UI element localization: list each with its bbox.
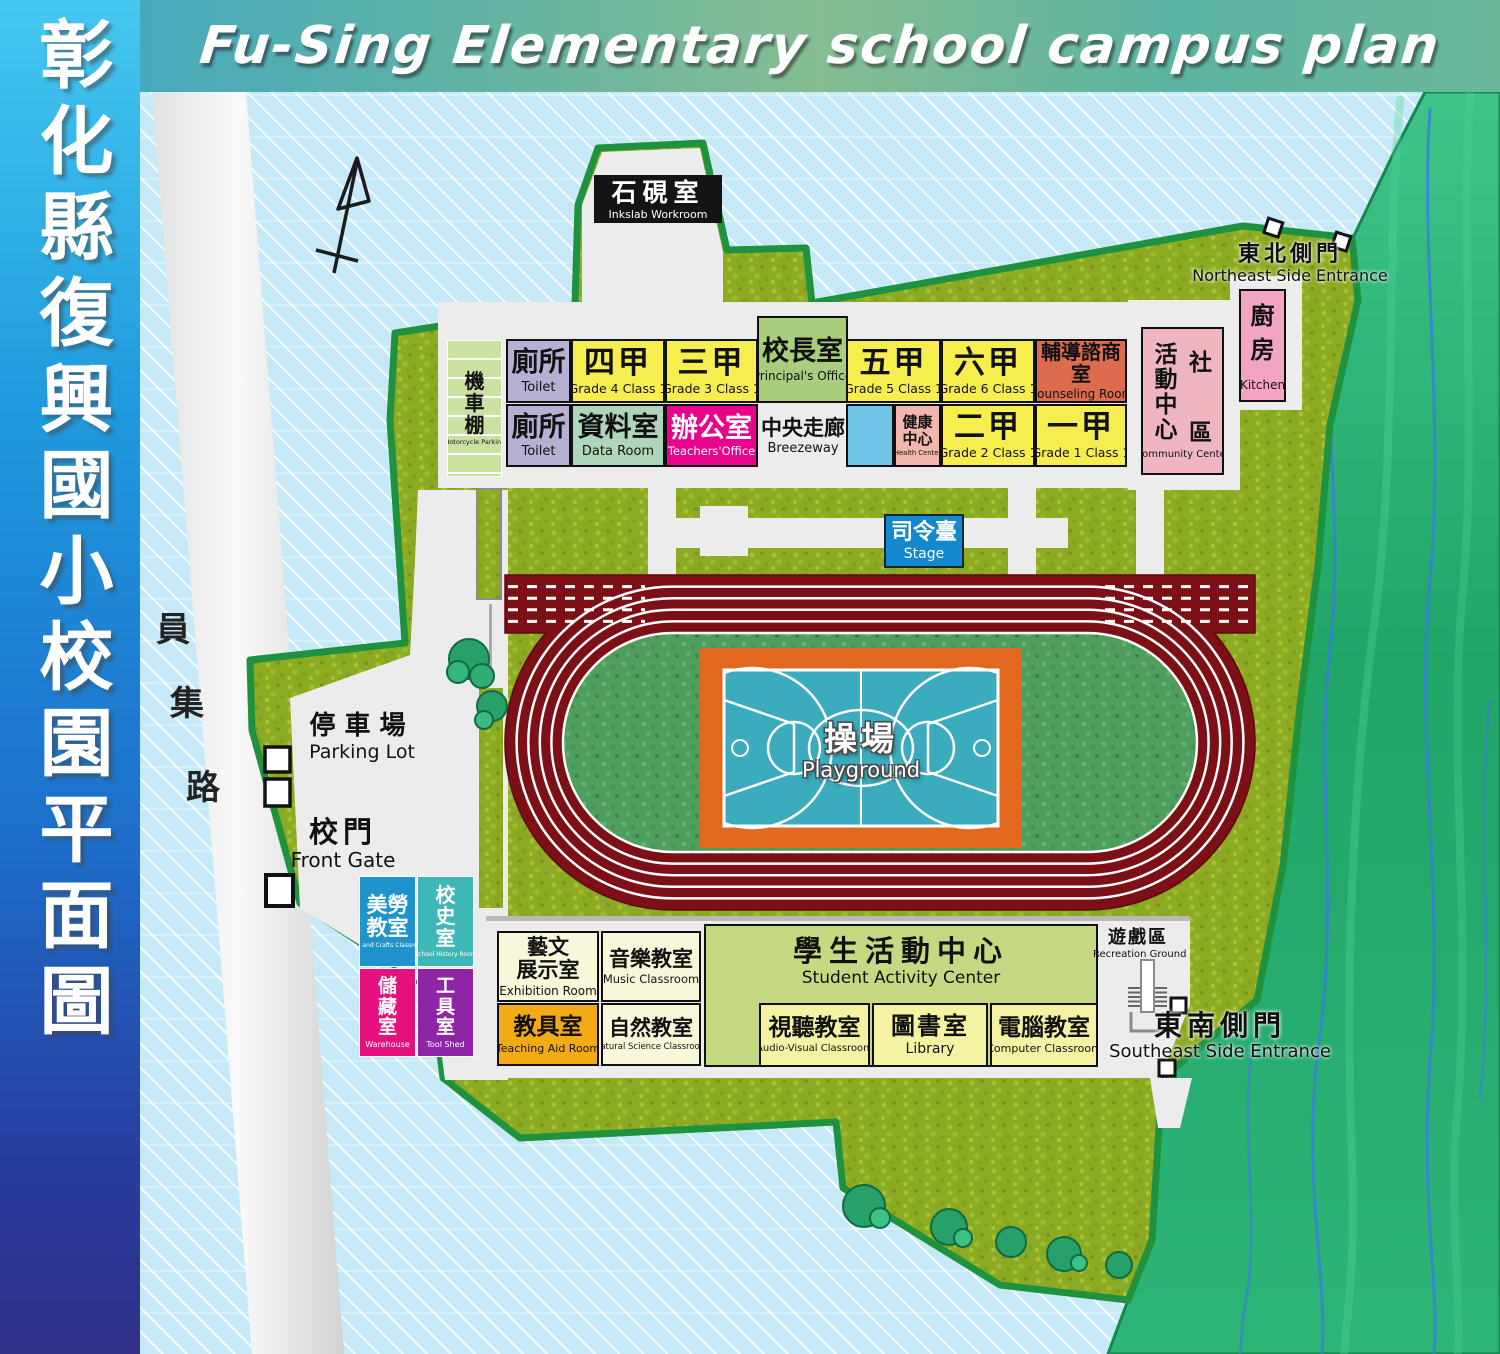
inkslab-workroom: 石硯室 Inkslab Workroom [594,175,722,223]
compass-north-arrow [316,158,369,273]
principals-office: 校長室 Principal's Office [757,316,848,403]
label-en: Counseling Room [1035,388,1127,400]
toilet-south: 廁所 Toilet [506,404,571,467]
natural-science-classroom: 自然教室 Natural Science Classroom [601,1003,701,1066]
label-en: Computer Classroom [990,1043,1098,1054]
northeast-entrance-label: 東北側門 Northeast Side Entrance [1160,242,1420,286]
label-zh: 東北側門 [1160,242,1420,267]
label-en: Grade 6 Class 1 [941,383,1035,396]
label-zh: 二甲 [954,411,1022,444]
grade3-classroom: 三甲 Grade 3 Class 1 [665,339,758,403]
label-zh: 健康 中心 [902,414,932,446]
label-en: Breezeway [767,442,838,455]
label-zh: 廁所 [512,348,566,377]
parking-gate-marker-2 [265,779,290,806]
retaining-wall [486,916,1190,921]
label-en: Grade 3 Class 1 [665,383,758,396]
label-en: Warehouse [365,1041,409,1049]
label-zh: 石硯室 [611,179,704,206]
southeast-entrance-label: 東南側門 Southeast Side Entrance [1095,1010,1345,1063]
page-title: Fu-Sing Elementary school campus plan [197,16,1443,76]
label-en: Recreation Ground [1093,949,1183,961]
label-en: Teachers'Office [668,446,755,458]
label-en: Front Gate [288,849,398,872]
label-en: Southeast Side Entrance [1095,1042,1345,1063]
sidebar-title: 彰化縣復興國小校園平面圖 [33,16,107,1354]
label-zh: 廁所 [512,413,566,442]
sidebar-banner: 彰化縣復興國小校園平面圖 [0,0,140,1354]
arts-crafts-classroom: 美勞 教室 Arts and Crafts Classroom [359,876,416,967]
label-zh: 中央走廊 [761,417,845,440]
label-zh: 儲 藏 室 [378,976,397,1038]
label-zh: 六甲 [954,347,1022,380]
label-en: Toilet [521,445,555,458]
recreation-ground-label: 遊戲區 Recreation Ground [1093,928,1183,960]
label-en: Music Classroom [603,974,699,986]
label-zh: 藝文 展示室 [517,936,580,981]
label-zh: 活動中心 [1153,343,1179,447]
toilet-north: 廁所 Toilet [506,339,571,403]
label-en: Data Room [582,445,654,458]
grade2-classroom: 二甲 Grade 2 Class 1 [941,404,1035,467]
label-en: Tool Shed [426,1041,464,1049]
label-zh: 四甲 [584,347,652,380]
label-zh: 社 [1189,343,1212,377]
label-zh: 校 史 室 [436,885,456,950]
label-zh: 電腦教室 [998,1016,1090,1041]
grade1-classroom: 一甲 Grade 1 Class 1 [1035,404,1127,467]
label-zh: 司令臺 [891,521,957,545]
grade5-classroom: 五甲 Grade 5 Class 1 [846,339,941,403]
parking-lot-label: 停車場 Parking Lot [292,712,432,764]
music-classroom: 音樂教室 Music Classroom [601,931,701,1002]
counseling-room: 輔導諮商室 Counseling Room [1035,339,1127,403]
label-en: Grade 4 Class 1 [571,383,665,396]
stage: 司令臺 Stage [884,514,964,568]
label-en: Inkslab Workroom [609,209,708,220]
label-zh: 辦公室 [671,414,752,443]
community-center: 活動中心 社 區 Community Center [1141,327,1224,475]
parking-gate-marker-1 [265,747,290,772]
northeast-gate-marker-1 [1264,218,1283,237]
label-zh: 教具室 [514,1015,583,1040]
label-en: Library [906,1042,955,1056]
computer-classroom: 電腦教室 Computer Classroom [990,1003,1098,1067]
label-zh: 音樂教室 [609,948,693,971]
label-zh: 圖書室 [891,1014,969,1040]
label-en: Exhibition Room [499,985,597,997]
label-zh: 操場 [795,720,927,758]
motorcycle-parking: 機 車 棚 Motorcycle Parking [447,340,502,477]
label-zh: 學生活動中心 [793,936,1009,967]
road-name-char-2: 集 [170,676,204,725]
school-history-room: 校 史 室 School History Room [417,876,474,967]
title-band: Fu-Sing Elementary school campus plan [140,0,1500,92]
label-zh: 區 [1189,413,1212,447]
playground-label: 操場 Playground [795,720,927,782]
road-name-char-3: 路 [186,760,220,809]
label-en: Parking Lot [292,742,432,764]
label-zh: 停車場 [292,712,432,742]
label-zh: 資料室 [578,413,659,442]
health-center: 健康 中心 Health Center [894,404,941,467]
label-zh: 工 具 室 [436,976,455,1038]
label-en: Grade 2 Class 1 [941,447,1035,460]
label-zh: 美勞 教室 [367,894,409,939]
label-zh: 輔導諮商室 [1037,342,1125,385]
teaching-aid-room: 教具室 Teaching Aid Room [497,1003,599,1066]
breezeway: 中央走廊 Breezeway [758,408,848,464]
label-en: Arts and Crafts Classroom [359,943,416,949]
community-center-columns: 活動中心 社 區 [1153,343,1212,447]
road-name-char-1: 員 [156,602,190,651]
label-zh: 機 車 棚 [465,371,485,436]
label-en: Audio-Visual Classroom [759,1044,870,1054]
label-en: Grade 1 Class 1 [1035,447,1127,460]
tool-shed: 工 具 室 Tool Shed [417,968,474,1057]
grade6-classroom: 六甲 Grade 6 Class 1 [941,339,1035,403]
campus-plan-image: Fu-Sing Elementary school campus plan 彰化… [0,0,1500,1354]
label-zh: 一甲 [1047,411,1115,444]
label-en: Teaching Aid Room [497,1043,599,1054]
label-en: School History Room [417,952,474,958]
label-zh: 廚 房 [1251,300,1275,367]
label-en: Northeast Side Entrance [1160,267,1420,285]
unlabeled-room [846,404,894,467]
front-gate-marker [266,875,293,906]
label-zh: 五甲 [860,347,928,380]
label-en: Playground [795,758,927,782]
label-en: Principal's Office [757,370,848,382]
label-zh: 視聽教室 [769,1016,861,1041]
library: 圖書室 Library [872,1003,988,1067]
front-gate-label: 校門 Front Gate [288,816,398,872]
label-en: Health Center [894,450,941,457]
label-en: Stage [904,547,944,561]
audio-visual-classroom: 視聽教室 Audio-Visual Classroom [759,1003,870,1067]
label-en: Grade 5 Class 1 [846,383,941,396]
label-zh: 自然教室 [609,1017,693,1040]
label-zh: 東南側門 [1095,1010,1345,1042]
data-room: 資料室 Data Room [571,404,665,467]
label-zh: 遊戲區 [1093,928,1183,949]
label-en: Natural Science Classroom [601,1043,701,1052]
teachers-office: 辦公室 Teachers'Office [665,404,758,467]
label-zh: 三甲 [678,347,746,380]
label-en: Toilet [521,381,555,394]
label-zh: 校長室 [762,337,843,366]
label-zh: 校門 [288,816,398,849]
label-en: Kitchen [1240,379,1285,391]
grade4-classroom: 四甲 Grade 4 Class 1 [571,339,665,403]
kitchen: 廚 房 Kitchen [1239,289,1286,402]
label-en: Community Center [1141,450,1224,460]
exhibition-room: 藝文 展示室 Exhibition Room [497,931,599,1002]
warehouse: 儲 藏 室 Warehouse [359,968,416,1057]
label-en: Motorcycle Parking [447,439,502,446]
label-en: Student Activity Center [802,970,1001,987]
